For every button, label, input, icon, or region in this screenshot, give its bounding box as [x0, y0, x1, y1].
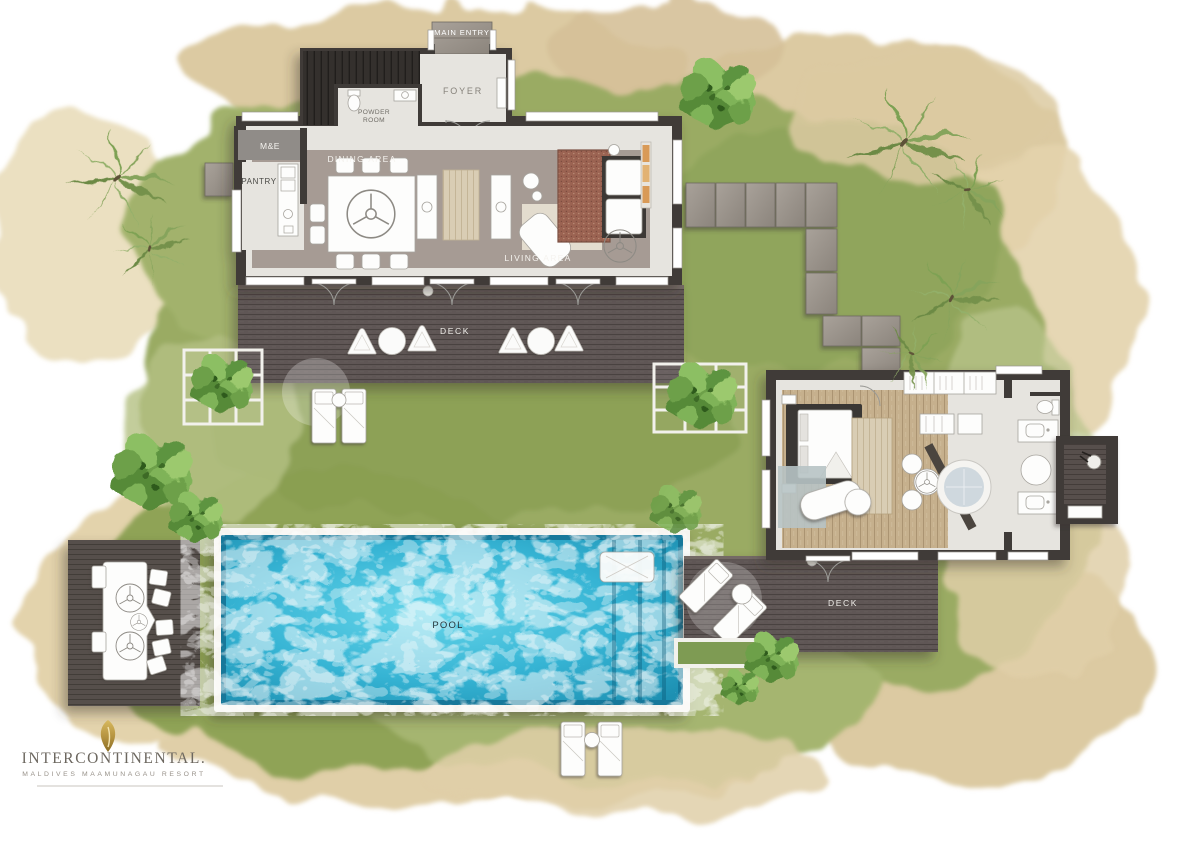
- outdoor-shower: [1056, 436, 1118, 524]
- floor-plan-canvas: POOL DECK MAIN ENTRY FOYER: [0, 0, 1200, 849]
- wardrobe: [904, 372, 996, 394]
- vanity-bottom: [1018, 492, 1058, 514]
- shower-icon: [1087, 455, 1101, 469]
- powder-room-label-2: ROOM: [363, 117, 385, 124]
- pantry-label: PANTRY: [241, 177, 276, 186]
- main-deck-label: DECK: [440, 326, 470, 336]
- pool: POOL: [214, 528, 690, 712]
- me-room: M&E: [238, 130, 304, 160]
- brand-name: INTERCONTINENTAL.: [22, 750, 207, 767]
- foyer-label: FOYER: [443, 86, 483, 96]
- bedroom-deck-label: DECK: [828, 598, 858, 608]
- vanity-top: [1018, 420, 1058, 442]
- in-pool-daybed: [600, 552, 654, 582]
- main-entry-landing: MAIN ENTRY: [428, 22, 496, 56]
- powder-room-label-1: POWDER: [358, 109, 390, 116]
- living-area-label: LIVING AREA: [504, 253, 571, 263]
- me-label: M&E: [260, 141, 280, 151]
- bedroom-pavilion: [762, 366, 1070, 582]
- pool-label: POOL: [432, 620, 463, 631]
- pantry: PANTRY: [241, 162, 304, 250]
- round-bathtub-icon: [937, 460, 991, 514]
- floor-plan-drawing: POOL DECK MAIN ENTRY FOYER: [0, 0, 1200, 849]
- dining-area-label: DINING AREA: [327, 154, 396, 164]
- bedroom-deck: DECK: [676, 556, 938, 666]
- outdoor-dining-table: [92, 562, 174, 680]
- brand-tagline: MALDIVES MAAMUNAGAU RESORT: [22, 771, 205, 778]
- outdoor-dining-deck: [68, 540, 200, 706]
- powder-room: POWDER ROOM: [336, 86, 420, 132]
- main-entry-label: MAIN ENTRY: [434, 28, 490, 37]
- ottoman: [1021, 455, 1051, 485]
